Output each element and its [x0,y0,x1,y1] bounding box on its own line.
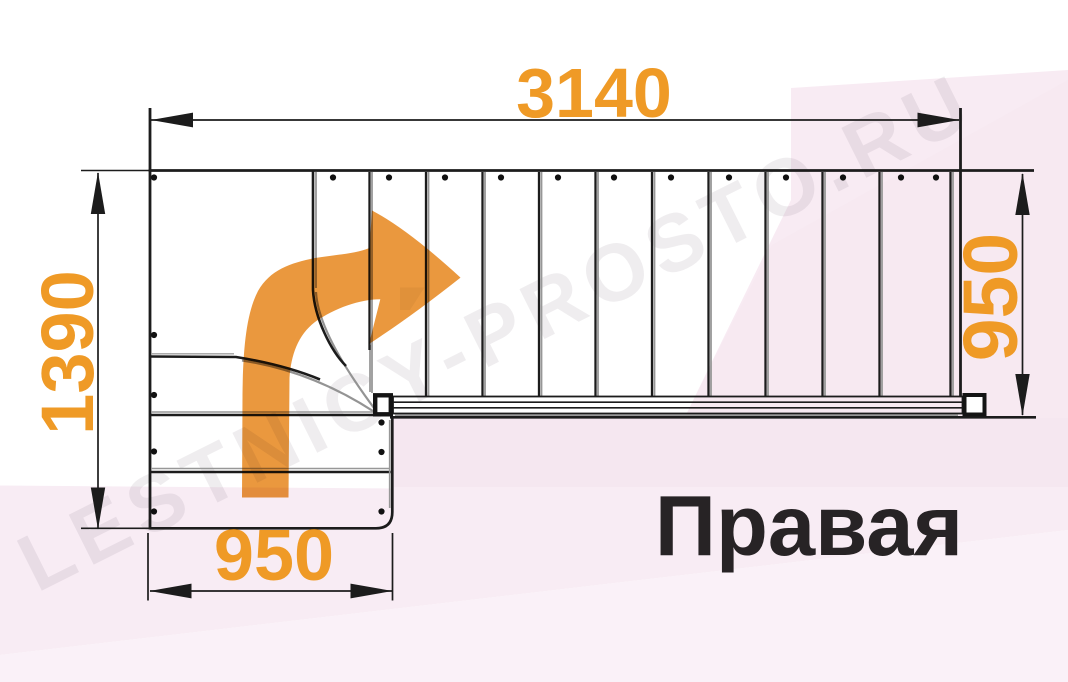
svg-text:1390: 1390 [26,270,109,435]
svg-text:Правая: Правая [655,479,963,574]
svg-text:950: 950 [214,516,334,596]
svg-text:950: 950 [948,233,1034,361]
svg-text:3140: 3140 [516,54,672,132]
